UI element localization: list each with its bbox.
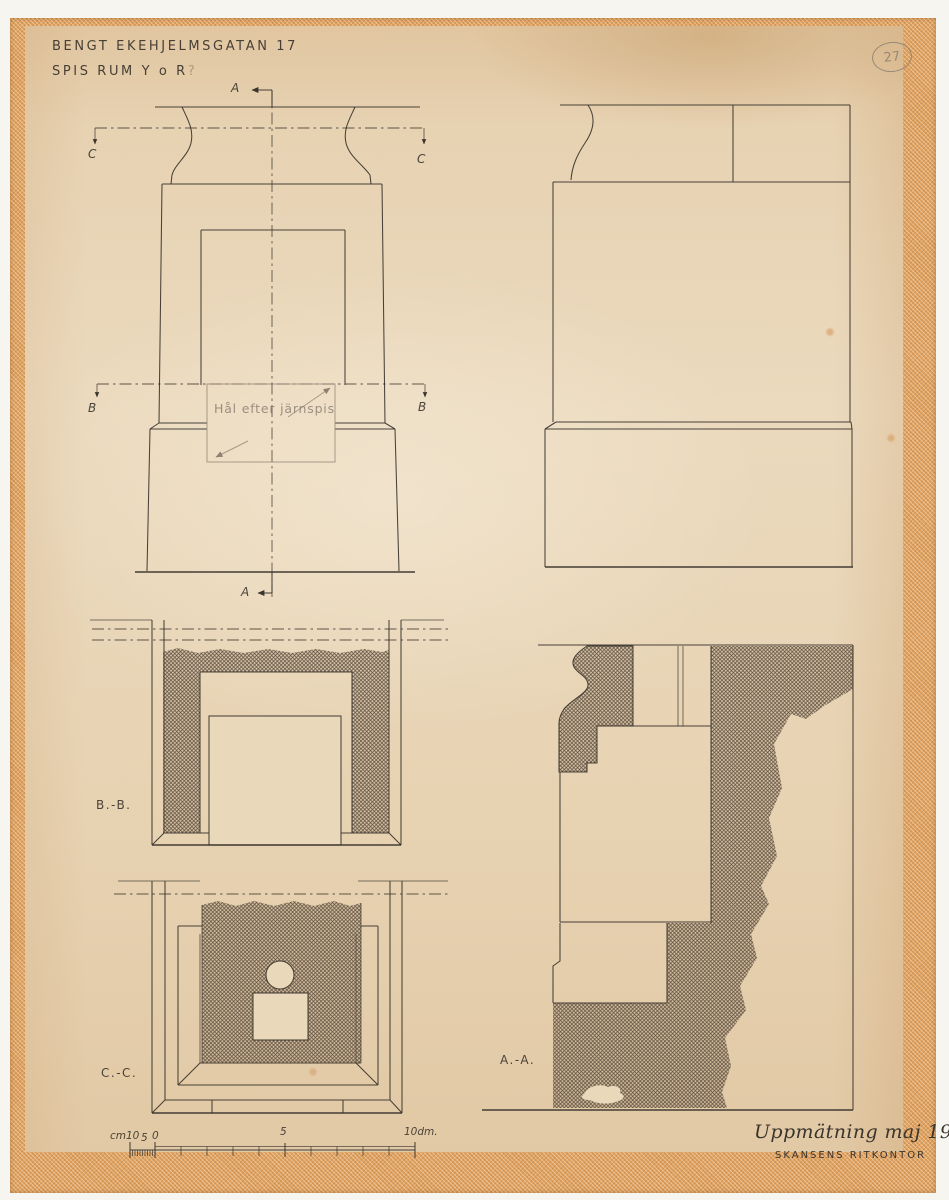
side-elevation-drawing (545, 105, 853, 567)
scale-dm-10: 10dm. (404, 1126, 438, 1138)
title-line-1: BENGT EKEHJELMSGATAN 17 (52, 39, 298, 54)
office-name: SKANSENS RITKONTOR (775, 1150, 926, 1161)
cut-letter-c-right: C (417, 152, 425, 166)
title-line-2: SPIS RUM Y o R? (52, 64, 197, 79)
title-line-2-text: SPIS RUM Y o R (52, 64, 188, 79)
section-bb-drawing (90, 620, 452, 845)
drawing-sheet: BENGT EKEHJELMSGATAN 17 SPIS RUM Y o R? … (0, 0, 949, 1200)
section-aa-drawing (482, 645, 853, 1110)
sheet-number: 27 (883, 49, 901, 66)
scale-cm-5: 5 (141, 1132, 148, 1144)
section-label-bb: B.-B. (96, 798, 132, 812)
cut-letter-b-left: B (88, 401, 96, 415)
scale-cm-0: 0 (152, 1130, 159, 1142)
scale-dm-5: 5 (280, 1126, 287, 1138)
survey-note: Uppmätning maj 1938 (754, 1121, 949, 1143)
section-label-cc: C.-C. (101, 1066, 137, 1080)
pencil-note: Hål efter järnspis (214, 401, 335, 416)
cut-letter-a-bottom: A (241, 585, 249, 599)
front-elevation-drawing (95, 90, 425, 597)
linework-svg (0, 0, 949, 1200)
cut-letter-c-left: C (88, 147, 96, 161)
section-cc-drawing (114, 881, 450, 1113)
section-label-aa: A.-A. (500, 1053, 535, 1067)
cut-letter-a-top: A (231, 81, 239, 95)
scale-cm-label: cm10 (110, 1130, 139, 1142)
title-query-mark: ? (188, 64, 198, 79)
cut-letter-b-right: B (418, 400, 426, 414)
scale-bar (130, 1142, 415, 1158)
